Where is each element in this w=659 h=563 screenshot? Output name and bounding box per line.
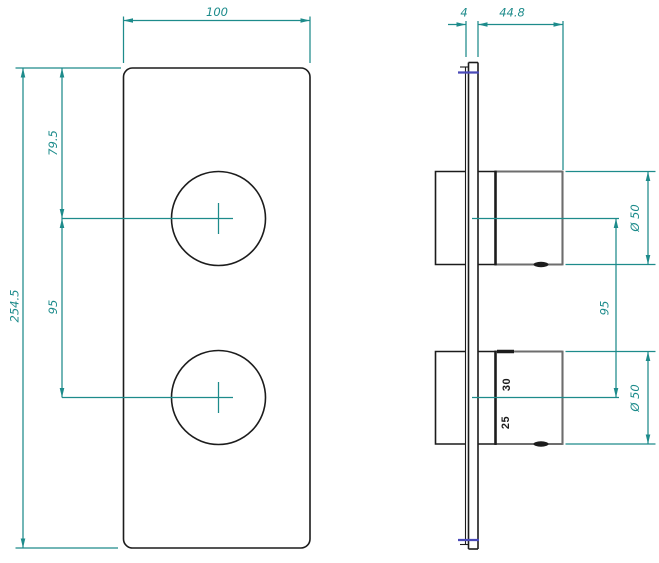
lower-valve-body — [436, 352, 467, 445]
dim-label-plate-thickness: 4 — [460, 6, 467, 20]
upper-valve-body — [436, 172, 467, 265]
knob-indicator-marker — [534, 262, 549, 267]
dim-side-right: Ø 50 95 Ø 50 — [566, 172, 656, 445]
dim-label-knob-depth: 44.8 — [499, 6, 525, 20]
technical-drawing-sheet: 100 254.5 79.5 95 — [0, 0, 659, 563]
lower-knob-side: 30 25 — [436, 351, 620, 447]
arrowhead-down — [60, 388, 65, 398]
side-view: 4 44.8 — [436, 6, 656, 550]
arrowhead-up — [60, 219, 65, 229]
knob-mark-30: 30 — [501, 378, 513, 391]
arrowhead-down — [646, 435, 651, 445]
dim-front-height: 254.5 — [8, 68, 122, 548]
knob-indicator-marker — [534, 441, 549, 446]
upper-knob-side — [436, 171, 620, 268]
dim-label-height: 254.5 — [8, 290, 22, 323]
side-plate — [458, 63, 479, 550]
arrowhead-up — [614, 219, 619, 229]
arrowhead-right — [301, 18, 311, 23]
dim-label-lower-diameter: Ø 50 — [628, 384, 642, 412]
arrowhead-down — [614, 388, 619, 398]
shower-valve-drawing: 100 254.5 79.5 95 — [0, 0, 659, 563]
dim-label-width: 100 — [206, 5, 228, 19]
dim-front-knob-positions: 79.5 95 — [46, 68, 64, 398]
arrowhead-up — [646, 352, 651, 362]
dim-label-knob-spacing: 95 — [46, 300, 60, 315]
arrowhead-up — [646, 172, 651, 182]
arrowhead-up — [21, 68, 26, 78]
knob-mark-25: 25 — [500, 416, 512, 429]
arrowhead-left — [478, 22, 488, 27]
arrowhead-right — [554, 22, 564, 27]
dim-front-width: 100 — [124, 5, 311, 63]
faceplate-outline — [124, 68, 311, 548]
dim-label-side-spacing: 95 — [598, 301, 612, 316]
dim-label-upper-diameter: Ø 50 — [628, 204, 642, 232]
arrowhead-right — [457, 22, 467, 27]
arrowhead-down — [60, 209, 65, 219]
arrowhead-down — [646, 255, 651, 265]
arrowhead-left — [124, 18, 134, 23]
arrowhead-up — [60, 68, 65, 78]
front-view: 100 254.5 79.5 95 — [8, 5, 311, 548]
dim-label-top-to-knob: 79.5 — [46, 130, 60, 156]
arrowhead-down — [21, 539, 26, 549]
